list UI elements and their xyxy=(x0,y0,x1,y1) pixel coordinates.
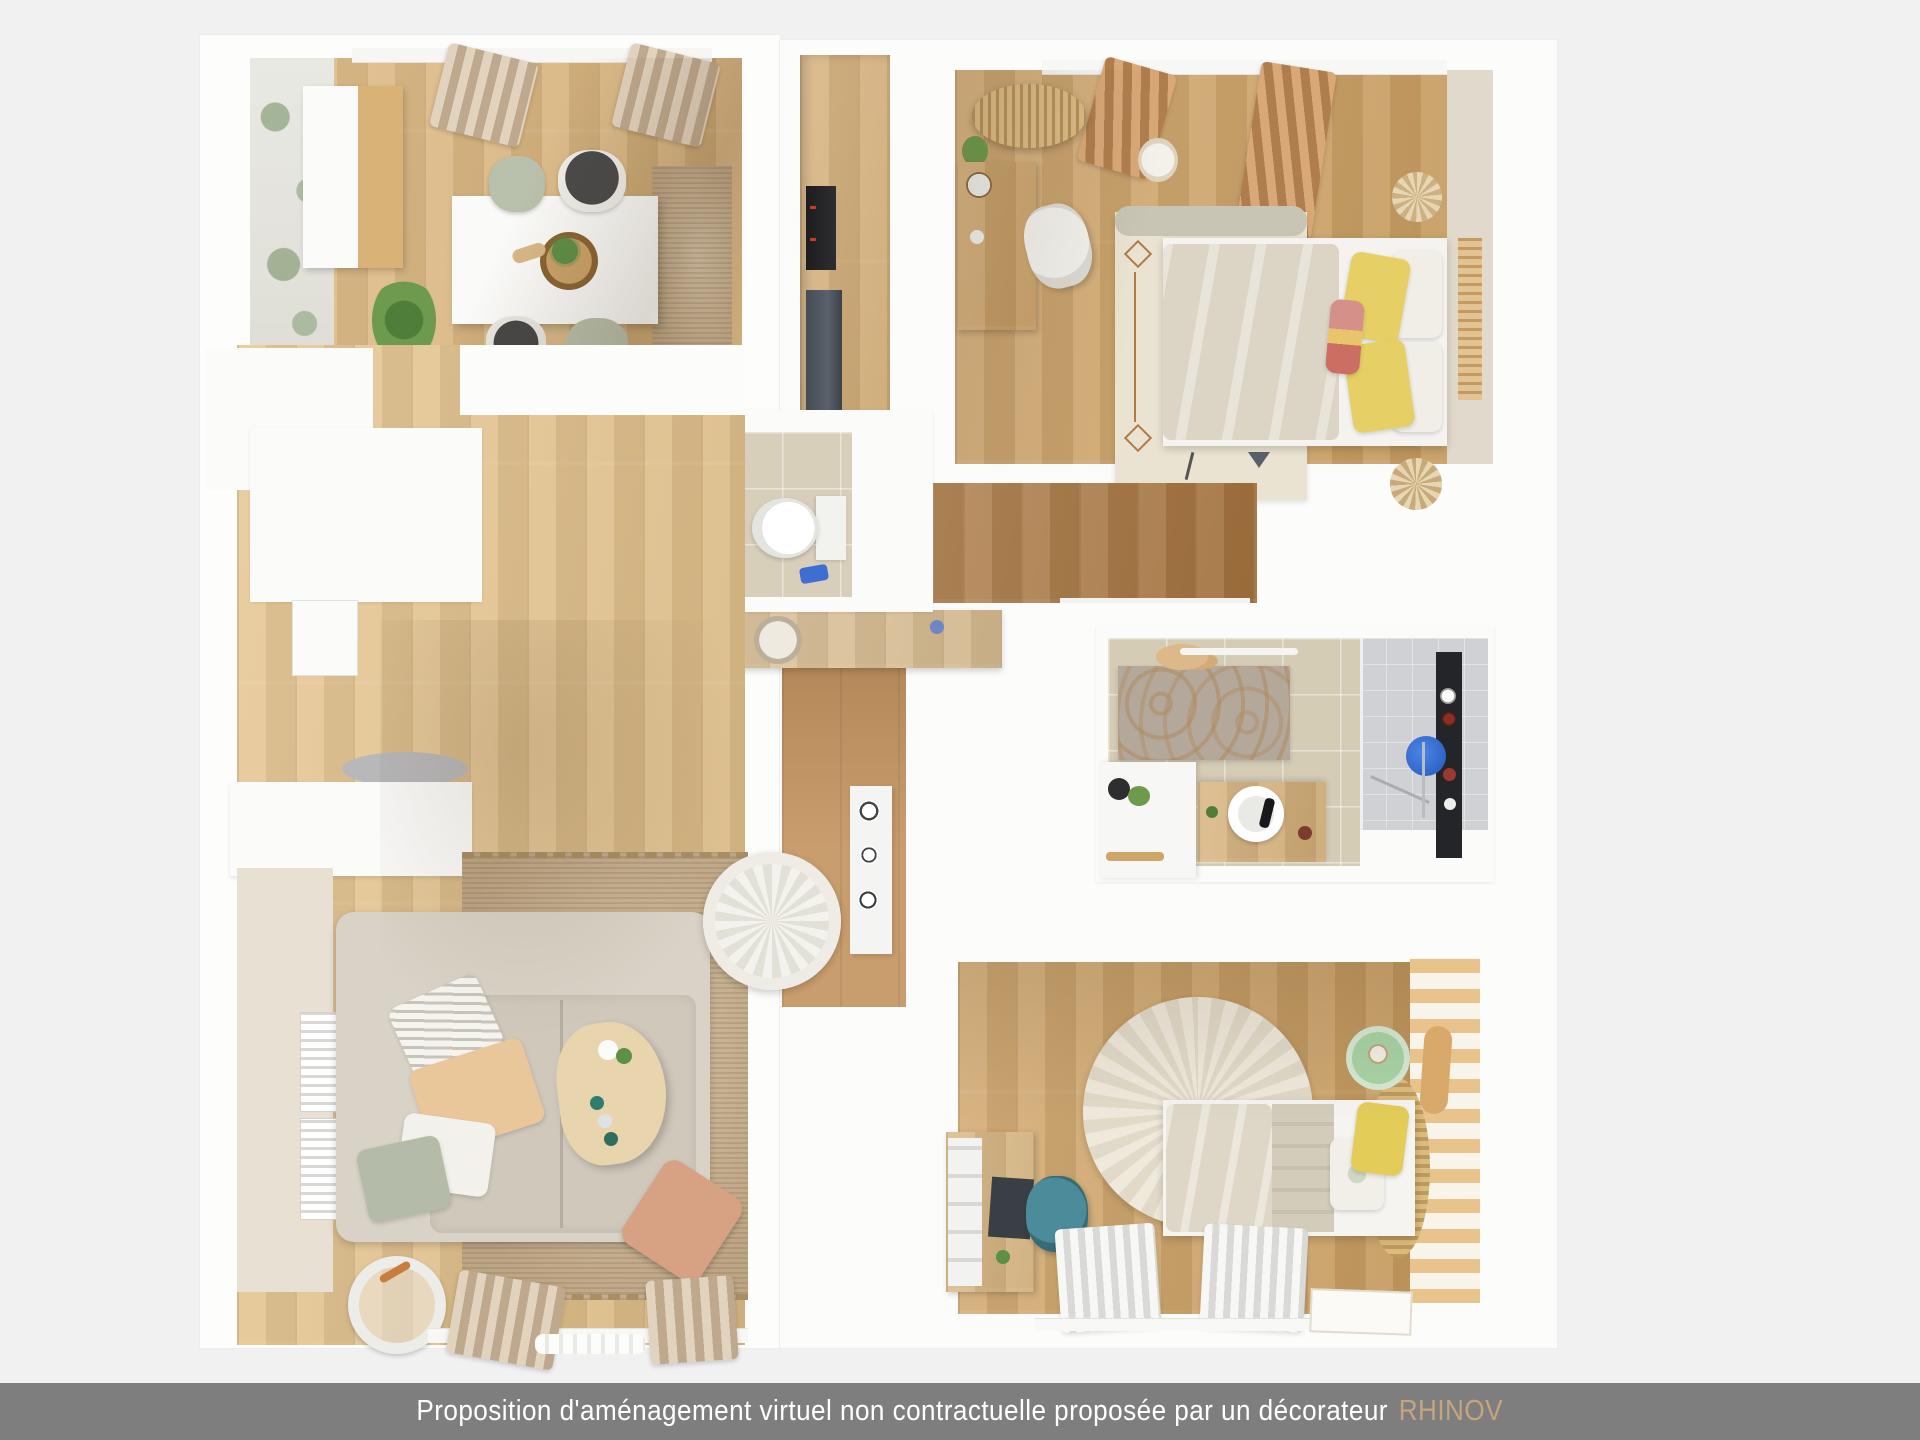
cabinet-plant xyxy=(1128,786,1150,806)
shelf-item-roll-3 xyxy=(858,890,878,910)
single-bed-duvet xyxy=(1166,1104,1272,1232)
door-mat xyxy=(342,752,468,786)
bedroom2-curtain-left xyxy=(1054,1223,1161,1334)
desk-mirror xyxy=(966,172,992,198)
living-curtain-left xyxy=(446,1269,567,1370)
bedroom2-window xyxy=(1035,1318,1327,1331)
rug-triangle-motif xyxy=(1248,452,1270,468)
decor-vase xyxy=(1138,138,1178,182)
shower-riser xyxy=(1422,742,1425,818)
toilet-tank xyxy=(816,496,846,560)
radiator-upper xyxy=(300,1012,338,1112)
rattan-pendant-light xyxy=(972,84,1086,148)
shelf-item-roll-2 xyxy=(860,846,878,864)
wall-mass-top xyxy=(460,345,745,415)
bed-bench-bolster xyxy=(1115,206,1307,236)
built-in-oven xyxy=(806,186,836,270)
built-in-fridge xyxy=(806,290,842,426)
oven-display-2 xyxy=(810,238,816,241)
vessel-sink xyxy=(1228,786,1284,842)
living-curtain-right xyxy=(645,1275,739,1365)
coffee-table-vase xyxy=(598,1040,618,1060)
desk-accessory xyxy=(970,230,984,244)
radiator-lower xyxy=(300,1118,338,1220)
papasan-chair xyxy=(703,852,841,990)
shelf-item-roll-1 xyxy=(858,800,880,822)
window-sill-bench xyxy=(535,1334,645,1354)
rug-line-motif xyxy=(1134,272,1136,422)
bedroom2-curtain-right xyxy=(1199,1223,1308,1332)
caption-text-row: Proposition d'aménagement virtuel non co… xyxy=(417,1395,1504,1428)
entry-closet xyxy=(250,428,482,602)
oven-display xyxy=(810,206,816,209)
entry-partition-wall xyxy=(230,782,472,876)
corridor-upper xyxy=(905,483,1257,603)
green-rug-cup xyxy=(1368,1044,1388,1064)
floor-frame-mat xyxy=(1309,1288,1412,1336)
bathroom-maze-rug xyxy=(1118,666,1290,760)
shower-blue-mirror xyxy=(1406,736,1446,776)
cabinet-pot xyxy=(1108,778,1130,800)
bathroom-door-threshold xyxy=(1060,598,1250,603)
folded-blanket xyxy=(1272,1104,1334,1232)
caption-text: Proposition d'aménagement virtuel non co… xyxy=(417,1395,1389,1427)
table-plant xyxy=(552,238,578,264)
shower-item-white-1 xyxy=(1440,688,1456,704)
console-tray xyxy=(754,616,802,664)
bathroom-light-bar xyxy=(1180,648,1298,655)
shower-item-red-2 xyxy=(1443,768,1456,781)
decor-bead-2 xyxy=(598,1114,612,1128)
console-bottle xyxy=(930,620,944,634)
desk-plant xyxy=(996,1250,1010,1264)
bed-duvet xyxy=(1163,244,1339,440)
shower-item-red-1 xyxy=(1442,712,1456,726)
floorplan-render: Proposition d'aménagement virtuel non co… xyxy=(0,0,1920,1440)
watermark-caption-bar: Proposition d'aménagement virtuel non co… xyxy=(0,1383,1920,1440)
wall-hanging-ladder xyxy=(1458,238,1482,400)
pillow-pattern-accent xyxy=(1325,299,1365,376)
kitchen-runner-rug xyxy=(652,166,732,364)
wall-cabinet xyxy=(303,86,403,268)
cabinet-board xyxy=(1106,852,1164,861)
decor-bead-1 xyxy=(590,1096,604,1110)
vanity-accessory-1 xyxy=(1298,826,1312,840)
nightstand-pouf-top xyxy=(1392,172,1442,222)
decor-bead-3 xyxy=(604,1132,618,1146)
nightstand-pouf-bottom xyxy=(1390,458,1442,510)
coffee-table-plant xyxy=(616,1048,632,1064)
entry-door xyxy=(292,600,358,676)
shower-item-white-2 xyxy=(1444,798,1456,810)
vanity-plant xyxy=(1206,806,1218,818)
toilet-bowl xyxy=(752,498,818,558)
brand-logo-text: RHINOV xyxy=(1399,1395,1503,1427)
desk-shelf-stack xyxy=(948,1138,982,1286)
dining-chair-dark-top xyxy=(558,150,626,212)
dining-chair-sage-top xyxy=(489,156,545,212)
pillow-yellow-single xyxy=(1350,1101,1410,1177)
sheet-seam xyxy=(779,40,780,1348)
